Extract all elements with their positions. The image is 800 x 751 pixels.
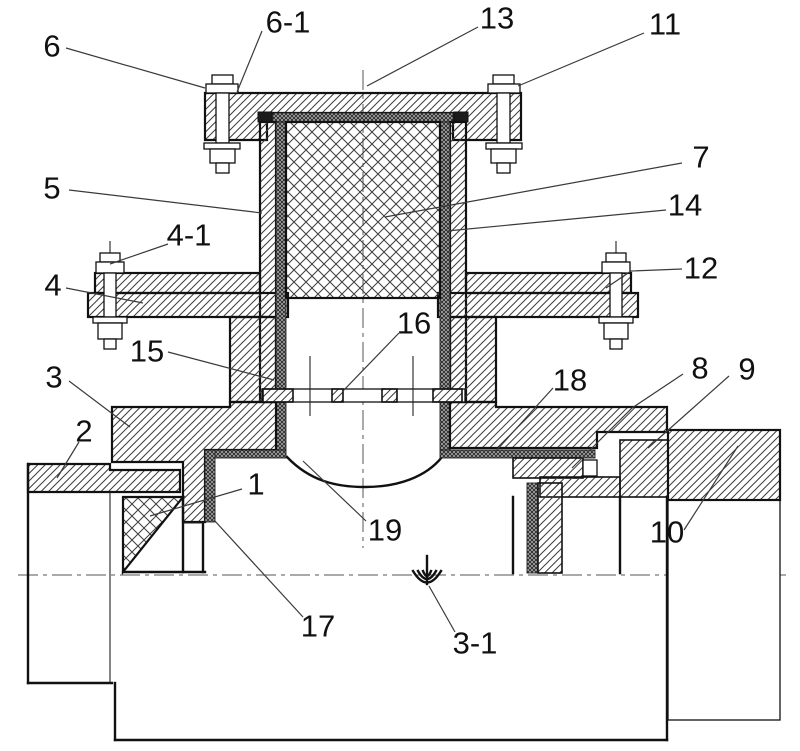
nut	[491, 149, 516, 163]
part-label-6-1: 6-1	[266, 5, 311, 40]
washer	[93, 317, 127, 323]
leader-line-19	[303, 461, 366, 521]
bolt-shank	[216, 93, 229, 143]
mid-flange-right	[438, 293, 638, 317]
part-label-3: 3	[45, 360, 62, 395]
bolt-head	[602, 262, 630, 273]
leader-line-13	[367, 27, 478, 86]
cover-gasket	[273, 113, 453, 122]
part-label-13: 13	[480, 1, 514, 36]
washer	[599, 317, 633, 323]
seat-seal-right	[527, 483, 538, 573]
leader-line-11	[518, 33, 644, 86]
part-label-4-1: 4-1	[167, 218, 212, 253]
bolt-tip	[104, 339, 116, 349]
bolt-cap	[212, 75, 233, 84]
plate-segment	[382, 389, 397, 402]
part-label-10: 10	[650, 515, 684, 550]
pipe-flange-right-hatched	[668, 430, 780, 500]
washer	[486, 143, 522, 149]
gasket-key-right	[454, 112, 468, 122]
part-label-18: 18	[553, 363, 587, 398]
plate-segment	[433, 389, 462, 402]
bolt-shank	[104, 273, 116, 317]
seat-liner-vertical-left	[205, 450, 215, 522]
seat-liner-horizontal-left	[205, 450, 286, 458]
seat-liner-horizontal-right	[440, 450, 595, 458]
part-label-9: 9	[738, 352, 755, 387]
leader-line-3-1	[429, 586, 455, 632]
bonnet-flange-upper-left	[95, 273, 260, 293]
right-seat-assembly	[440, 440, 668, 573]
absorber-block	[286, 122, 440, 298]
part-label-4: 4	[44, 268, 61, 303]
flange-hub-right	[620, 440, 668, 497]
drain-symbol	[413, 556, 441, 584]
patent-figure-page: 66-1131157144-1412153216188911017193-1	[0, 0, 800, 751]
part-label-19: 19	[368, 513, 402, 548]
washer	[204, 143, 240, 149]
part-label-12: 12	[684, 251, 718, 286]
part-label-1: 1	[247, 467, 264, 502]
gasket-key-left	[258, 112, 272, 122]
bolt-shank	[610, 273, 622, 317]
plate-segment	[263, 389, 293, 402]
bolt-shank	[497, 93, 510, 143]
part-label-15: 15	[130, 334, 164, 369]
plate-segment	[332, 389, 343, 402]
part-label-16: 16	[397, 306, 431, 341]
piping	[28, 430, 780, 740]
part-label-2: 2	[75, 414, 92, 449]
part-label-5: 5	[43, 171, 60, 206]
leader-line-6	[66, 48, 205, 88]
nut	[604, 323, 628, 339]
mid-flange-left	[88, 293, 288, 317]
bolt-tip	[497, 163, 510, 173]
part-label-7: 7	[692, 140, 709, 175]
leader-line-5	[69, 190, 262, 213]
part-label-17: 17	[301, 609, 335, 644]
nut	[98, 323, 122, 339]
part-label-8: 8	[691, 351, 708, 386]
bolt-tip	[216, 163, 229, 173]
part-label-6: 6	[43, 29, 60, 64]
bolt-head	[488, 84, 520, 93]
leader-line-6-1	[237, 31, 262, 92]
bolt-cap	[100, 253, 120, 262]
leader-line-16	[343, 333, 399, 391]
bolt-head	[206, 84, 238, 93]
bolt-tip	[610, 339, 622, 349]
bolt-cap	[493, 75, 514, 84]
seat-wedge-left	[123, 497, 183, 572]
pipe-flange-left	[28, 464, 180, 492]
leader-line-17	[214, 520, 303, 617]
ball-dome	[287, 457, 442, 487]
seat-ring-right	[538, 483, 562, 573]
nut	[210, 149, 235, 163]
part-label-11: 11	[649, 7, 681, 42]
bonnet-flange-upper-right	[466, 273, 631, 293]
valve-cross-section-drawing: 66-1131157144-1412153216188911017193-1	[0, 0, 800, 751]
part-label-14: 14	[668, 188, 702, 223]
part-label-3-1: 3-1	[453, 626, 498, 661]
leader-line-14	[447, 210, 666, 231]
gland-notch	[583, 460, 597, 476]
bolt-cap	[606, 253, 626, 262]
